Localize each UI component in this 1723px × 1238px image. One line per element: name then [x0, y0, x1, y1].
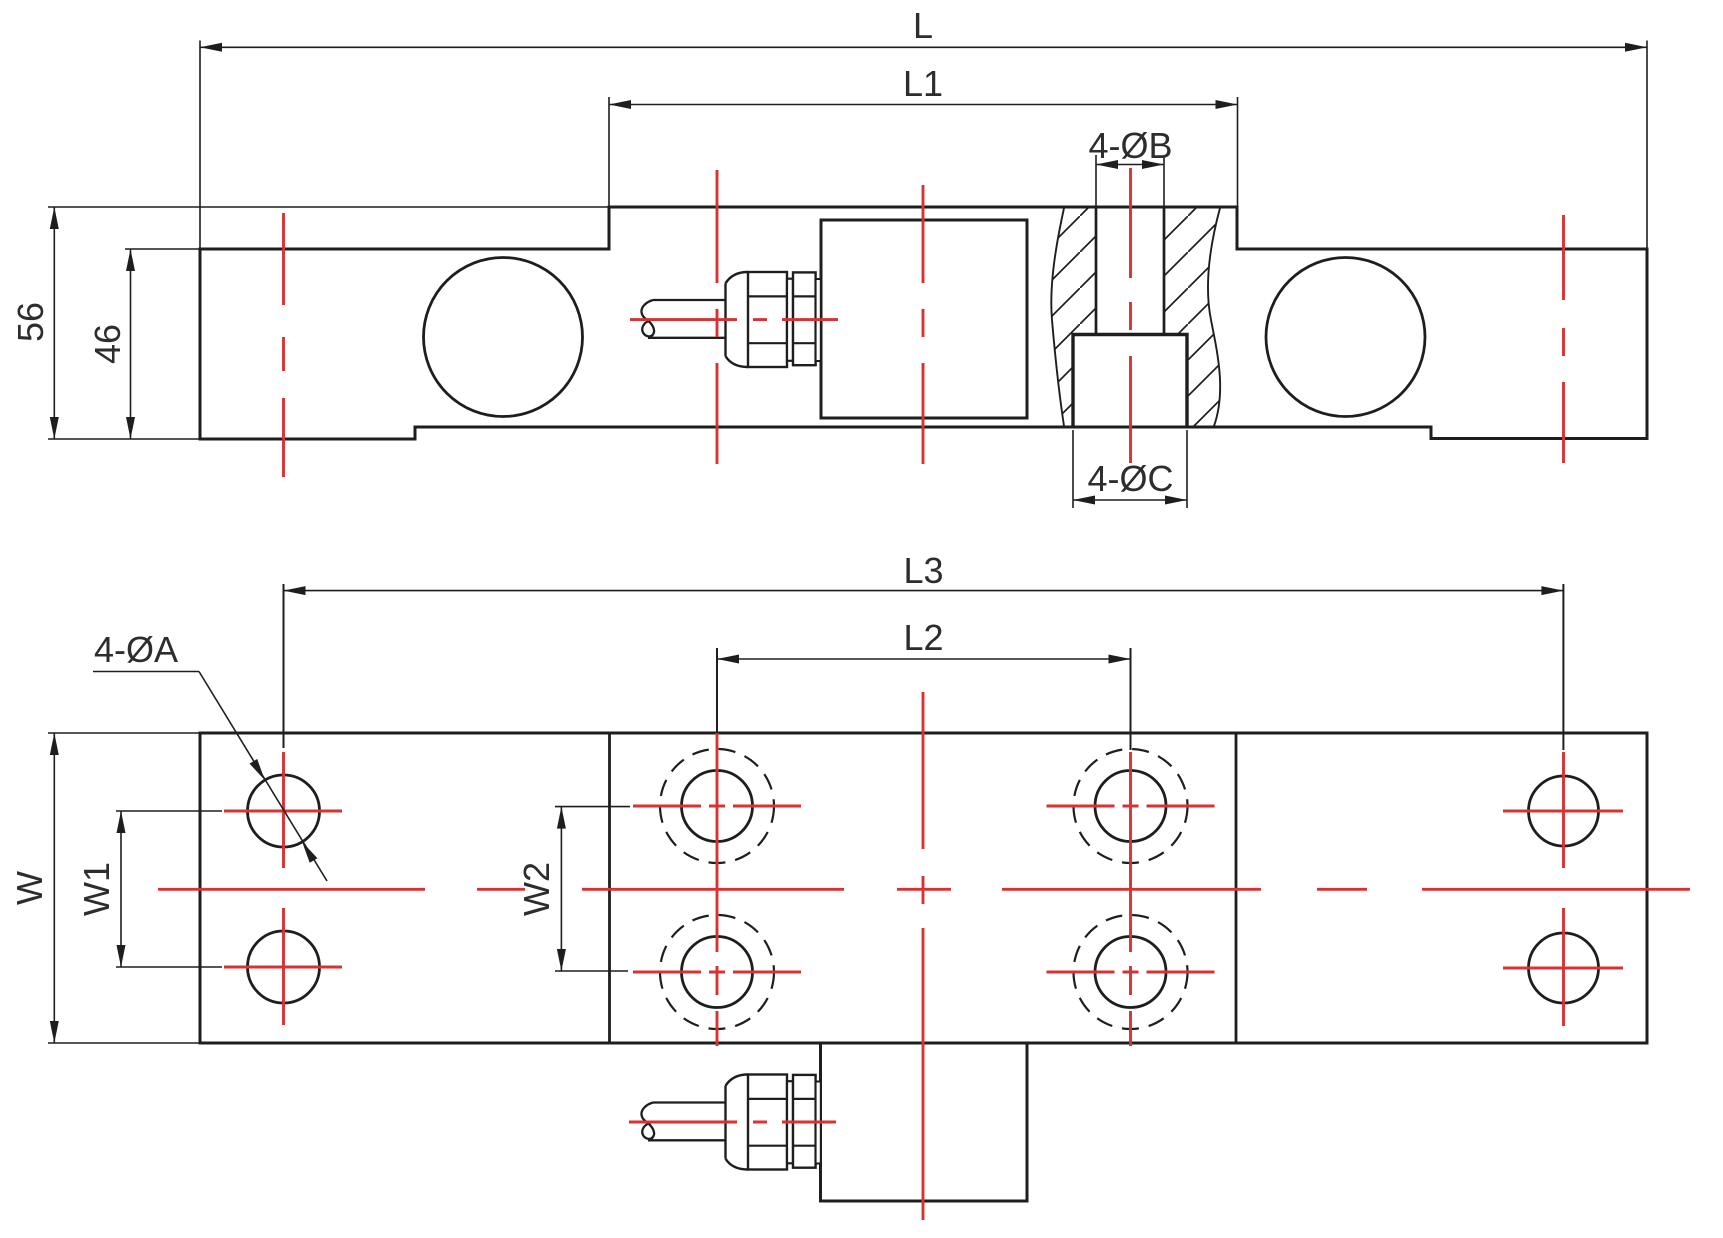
svg-text:4-ØA: 4-ØA: [94, 629, 178, 670]
svg-text:W: W: [9, 871, 50, 905]
svg-text:L: L: [913, 5, 933, 46]
svg-text:L1: L1: [903, 63, 943, 104]
svg-text:4-ØC: 4-ØC: [1087, 458, 1173, 499]
svg-text:4-ØB: 4-ØB: [1088, 125, 1172, 166]
svg-text:L2: L2: [903, 617, 943, 658]
svg-text:W1: W1: [76, 862, 117, 916]
svg-text:W2: W2: [516, 862, 557, 916]
svg-text:56: 56: [10, 302, 51, 342]
svg-text:L3: L3: [903, 550, 943, 591]
svg-text:46: 46: [87, 324, 128, 364]
